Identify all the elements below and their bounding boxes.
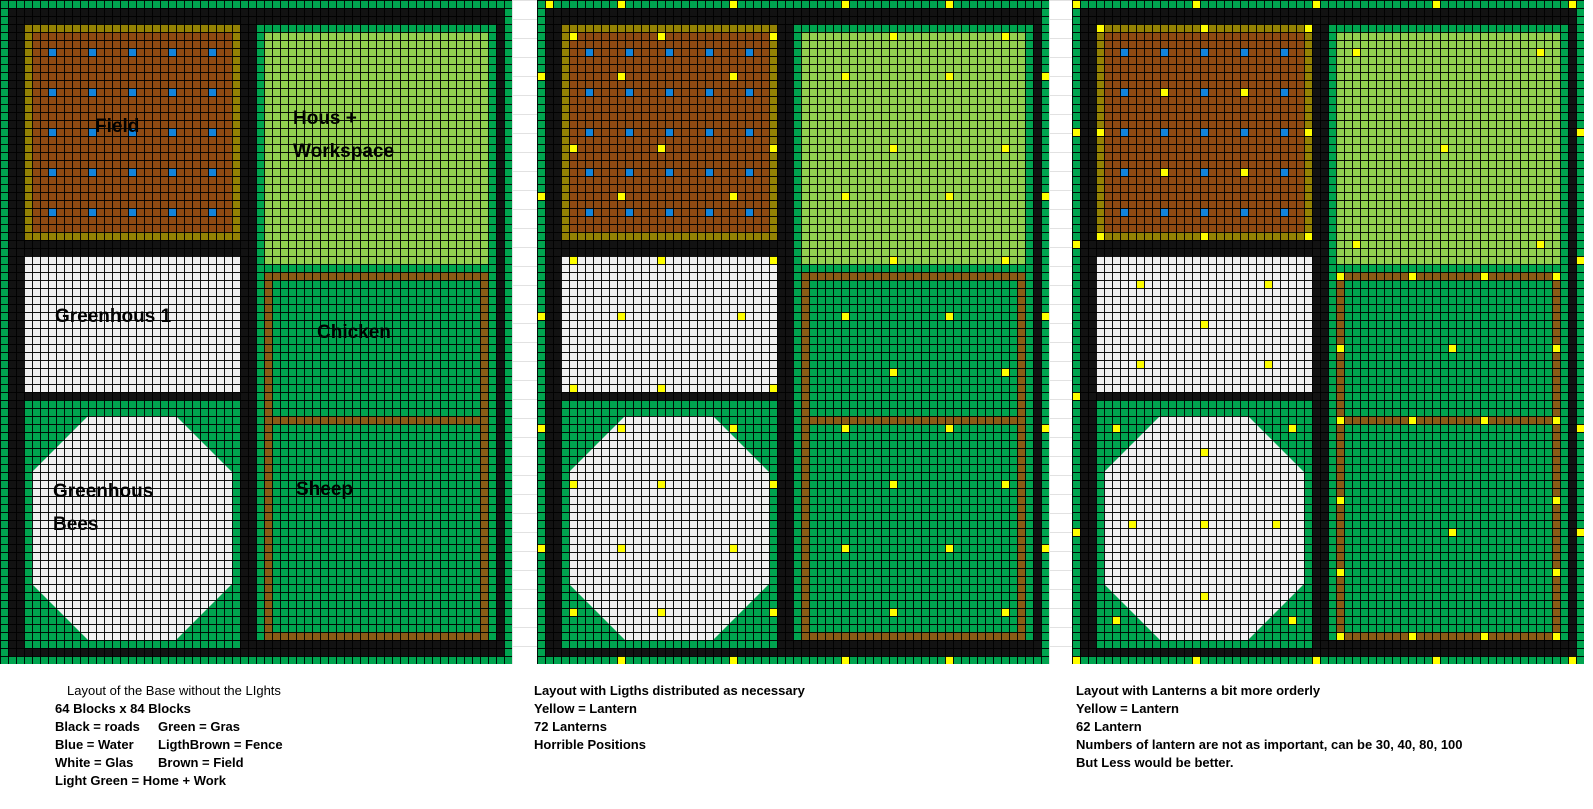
lantern-cell	[569, 32, 577, 40]
lantern-cell	[1312, 0, 1320, 8]
water-cell	[168, 128, 176, 136]
spreadsheet-gap-2	[1049, 0, 1072, 664]
water-cell	[1120, 48, 1128, 56]
lantern-cell	[945, 544, 953, 552]
lantern-cell	[737, 312, 745, 320]
water-cell	[1240, 128, 1248, 136]
lantern-cell	[1304, 24, 1312, 32]
lantern-cell	[1160, 88, 1168, 96]
lantern-cell	[1112, 616, 1120, 624]
lantern-cell	[617, 72, 625, 80]
lantern-cell	[889, 368, 897, 376]
lantern-cell	[617, 192, 625, 200]
lantern-cell	[1568, 656, 1576, 664]
region-border-top	[537, 0, 1049, 8]
caption-orderly-layout: Layout with Lanterns a bit more orderly …	[1076, 681, 1593, 772]
lantern-cell	[1408, 272, 1416, 280]
lantern-cell	[769, 256, 777, 264]
lantern-cell	[1336, 568, 1344, 576]
lantern-cell	[841, 544, 849, 552]
water-cell	[585, 128, 593, 136]
lantern-cell	[1536, 48, 1544, 56]
lantern-cell	[1552, 272, 1560, 280]
region-pen-divider-fence	[264, 416, 488, 424]
region-border-right	[504, 0, 512, 664]
lantern-cell	[657, 256, 665, 264]
lantern-cell	[1408, 632, 1416, 640]
region-border-left	[1072, 0, 1080, 664]
lantern-cell	[1136, 280, 1144, 288]
lantern-cell	[1200, 448, 1208, 456]
lantern-cell	[841, 656, 849, 664]
water-cell	[48, 48, 56, 56]
water-cell	[128, 48, 136, 56]
lantern-cell	[769, 608, 777, 616]
lantern-cell	[1264, 360, 1272, 368]
lantern-cell	[1200, 24, 1208, 32]
lantern-cell	[537, 72, 545, 80]
region-border-bottom	[537, 656, 1049, 664]
lantern-cell	[657, 608, 665, 616]
water-cell	[1120, 168, 1128, 176]
lantern-cell	[1408, 416, 1416, 424]
lantern-cell	[537, 424, 545, 432]
water-cell	[585, 208, 593, 216]
region-border-right	[1576, 0, 1584, 664]
water-cell	[625, 208, 633, 216]
region-border-left	[537, 0, 545, 664]
caption-line: Numbers of lantern are not as important,…	[1076, 736, 1593, 754]
water-cell	[745, 128, 753, 136]
water-cell	[665, 88, 673, 96]
lantern-cell	[657, 384, 665, 392]
water-cell	[665, 208, 673, 216]
lantern-cell	[1264, 280, 1272, 288]
lantern-cell	[1568, 0, 1576, 8]
water-cell	[1120, 128, 1128, 136]
lantern-cell	[1136, 360, 1144, 368]
block-grid-orderly	[1072, 0, 1584, 664]
lantern-cell	[1096, 24, 1104, 32]
caption-lights-layout: Layout with Ligths distributed as necess…	[534, 681, 1054, 754]
water-cell	[208, 128, 216, 136]
lantern-cell	[657, 144, 665, 152]
water-cell	[48, 168, 56, 176]
lantern-cell	[945, 656, 953, 664]
water-cell	[625, 48, 633, 56]
lantern-cell	[1001, 32, 1009, 40]
label-field: Field	[95, 116, 139, 138]
block-grid-lights	[537, 0, 1049, 664]
lantern-cell	[569, 384, 577, 392]
water-cell	[665, 168, 673, 176]
water-cell	[625, 128, 633, 136]
lantern-cell	[945, 0, 953, 8]
water-cell	[208, 168, 216, 176]
lantern-cell	[537, 312, 545, 320]
water-cell	[585, 48, 593, 56]
water-cell	[745, 88, 753, 96]
label-greenhous-1: Greenhous 1	[55, 306, 171, 328]
lantern-cell	[1432, 656, 1440, 664]
lantern-cell	[1304, 232, 1312, 240]
water-cell	[625, 168, 633, 176]
lantern-cell	[569, 144, 577, 152]
lantern-cell	[1288, 424, 1296, 432]
region-border-bottom	[1072, 656, 1584, 664]
caption-title: Layout with Ligths distributed as necess…	[534, 681, 1054, 700]
region-pen-divider-fence	[1336, 416, 1560, 424]
water-cell	[705, 168, 713, 176]
caption-line: But Less would be better.	[1076, 754, 1593, 772]
water-cell	[705, 128, 713, 136]
water-cell	[745, 168, 753, 176]
lantern-cell	[1001, 608, 1009, 616]
water-cell	[1280, 48, 1288, 56]
lantern-cell	[1336, 416, 1344, 424]
lantern-cell	[1336, 272, 1344, 280]
lantern-cell	[769, 384, 777, 392]
water-cell	[1200, 88, 1208, 96]
panel-lights-as-necessary: Layout with Ligths distributed as necess…	[537, 0, 1049, 809]
lantern-cell	[1200, 320, 1208, 328]
water-cell	[625, 88, 633, 96]
lantern-cell	[1272, 520, 1280, 528]
lantern-cell	[1001, 144, 1009, 152]
water-cell	[48, 208, 56, 216]
water-cell	[1160, 48, 1168, 56]
label-bees: Bees	[53, 514, 98, 536]
lantern-cell	[1552, 632, 1560, 640]
lantern-cell	[545, 0, 553, 8]
lantern-cell	[1041, 544, 1049, 552]
water-cell	[1160, 128, 1168, 136]
lantern-cell	[769, 480, 777, 488]
region-border-left	[0, 0, 8, 664]
caption-line: Horrible Positions	[534, 736, 1054, 754]
lantern-cell	[617, 312, 625, 320]
lantern-cell	[1041, 192, 1049, 200]
lantern-cell	[617, 656, 625, 664]
panel-lanterns-more-orderly: Layout with Lanterns a bit more orderly …	[1072, 0, 1584, 809]
caption-title: Layout of the Base without the LIghts	[55, 681, 575, 700]
lantern-cell	[1448, 528, 1456, 536]
lantern-cell	[1552, 568, 1560, 576]
water-cell	[1200, 128, 1208, 136]
water-cell	[1200, 168, 1208, 176]
water-cell	[1240, 208, 1248, 216]
lantern-cell	[569, 608, 577, 616]
water-cell	[208, 48, 216, 56]
caption-base-layout: Layout of the Base without the LIghts 64…	[55, 681, 575, 790]
lantern-cell	[1240, 88, 1248, 96]
label-sheep: Sheep	[296, 479, 353, 501]
lantern-cell	[729, 0, 737, 8]
water-cell	[88, 88, 96, 96]
region-pen-inner-grass	[1344, 280, 1552, 632]
lantern-cell	[1200, 520, 1208, 528]
lantern-cell	[1072, 240, 1080, 248]
lantern-cell	[1448, 344, 1456, 352]
water-cell	[1120, 208, 1128, 216]
lantern-cell	[1336, 344, 1344, 352]
lantern-cell	[1576, 424, 1584, 432]
lantern-cell	[729, 192, 737, 200]
lantern-cell	[1072, 128, 1080, 136]
lantern-cell	[1072, 392, 1080, 400]
lantern-cell	[569, 480, 577, 488]
lantern-cell	[1480, 632, 1488, 640]
lantern-cell	[1240, 168, 1248, 176]
lantern-cell	[945, 72, 953, 80]
lantern-cell	[1552, 496, 1560, 504]
panel-base-without-lights: FieldHous +WorkspaceGreenhous 1ChickenGr…	[0, 0, 512, 809]
lantern-cell	[729, 656, 737, 664]
lantern-cell	[769, 32, 777, 40]
lantern-cell	[1192, 656, 1200, 664]
lantern-cell	[1336, 632, 1344, 640]
lantern-cell	[1072, 528, 1080, 536]
caption-line: Light Green = Home + Work	[55, 772, 575, 790]
lantern-cell	[1192, 0, 1200, 8]
lantern-cell	[729, 424, 737, 432]
lantern-cell	[617, 544, 625, 552]
lantern-cell	[889, 608, 897, 616]
region-pen-inner-grass	[809, 280, 1017, 632]
caption-line: 64 Blocks x 84 Blocks	[55, 700, 575, 718]
lantern-cell	[1160, 168, 1168, 176]
region-hous-floor	[1336, 32, 1560, 264]
water-cell	[1200, 48, 1208, 56]
lantern-cell	[729, 72, 737, 80]
lantern-cell	[1041, 312, 1049, 320]
lantern-cell	[1440, 144, 1448, 152]
water-cell	[665, 48, 673, 56]
water-cell	[585, 168, 593, 176]
water-cell	[1120, 88, 1128, 96]
water-cell	[168, 208, 176, 216]
lantern-cell	[1096, 232, 1104, 240]
lantern-cell	[1336, 496, 1344, 504]
lantern-cell	[1536, 240, 1544, 248]
lantern-cell	[1072, 0, 1080, 8]
water-cell	[1240, 48, 1248, 56]
lantern-cell	[1001, 256, 1009, 264]
water-cell	[128, 168, 136, 176]
water-cell	[705, 48, 713, 56]
water-cell	[745, 48, 753, 56]
lantern-cell	[1576, 528, 1584, 536]
lantern-cell	[1432, 0, 1440, 8]
lantern-cell	[841, 0, 849, 8]
lantern-cell	[1576, 256, 1584, 264]
region-border-bottom	[0, 656, 512, 664]
caption-line: 62 Lantern	[1076, 718, 1593, 736]
label-chicken: Chicken	[317, 322, 391, 344]
water-cell	[705, 88, 713, 96]
water-cell	[128, 88, 136, 96]
water-cell	[585, 88, 593, 96]
region-border-top	[1072, 0, 1584, 8]
lantern-cell	[729, 544, 737, 552]
water-cell	[1280, 168, 1288, 176]
water-cell	[705, 208, 713, 216]
lantern-cell	[889, 144, 897, 152]
lantern-cell	[1001, 480, 1009, 488]
lantern-cell	[1041, 424, 1049, 432]
lantern-cell	[889, 32, 897, 40]
water-cell	[48, 88, 56, 96]
lantern-cell	[841, 72, 849, 80]
caption-line: Yellow = Lantern	[1076, 700, 1593, 718]
region-border-top	[0, 0, 512, 8]
lantern-cell	[889, 480, 897, 488]
caption-line: Black = roadsGreen = Gras	[55, 718, 575, 736]
lantern-cell	[1352, 48, 1360, 56]
lantern-cell	[841, 424, 849, 432]
lantern-cell	[841, 192, 849, 200]
lantern-cell	[1552, 416, 1560, 424]
lantern-cell	[945, 312, 953, 320]
water-cell	[168, 48, 176, 56]
lantern-cell	[1288, 616, 1296, 624]
water-cell	[168, 168, 176, 176]
lantern-cell	[1480, 416, 1488, 424]
lantern-cell	[1352, 240, 1360, 248]
water-cell	[208, 88, 216, 96]
water-cell	[208, 208, 216, 216]
lantern-cell	[1576, 128, 1584, 136]
spreadsheet-gap-1	[512, 0, 537, 664]
caption-line: 72 Lanterns	[534, 718, 1054, 736]
lantern-cell	[569, 256, 577, 264]
lantern-cell	[1552, 344, 1560, 352]
water-cell	[1280, 128, 1288, 136]
lantern-cell	[1112, 424, 1120, 432]
lantern-cell	[1200, 232, 1208, 240]
caption-line: Yellow = Lantern	[534, 700, 1054, 718]
caption-line: White = GlasBrown = Field	[55, 754, 575, 772]
lantern-cell	[1200, 592, 1208, 600]
water-cell	[1200, 208, 1208, 216]
lantern-cell	[617, 424, 625, 432]
lantern-cell	[769, 144, 777, 152]
region-greenhous1-glass	[561, 256, 777, 392]
lantern-cell	[841, 312, 849, 320]
water-cell	[1280, 88, 1288, 96]
water-cell	[168, 88, 176, 96]
water-cell	[1160, 208, 1168, 216]
lantern-cell	[657, 32, 665, 40]
lantern-cell	[1312, 656, 1320, 664]
label-workspace: Workspace	[293, 141, 394, 163]
lantern-cell	[945, 192, 953, 200]
caption-line: Blue = WaterLigthBrown = Fence	[55, 736, 575, 754]
region-hous-floor	[801, 32, 1025, 264]
water-cell	[128, 208, 136, 216]
lantern-cell	[1480, 272, 1488, 280]
lantern-cell	[945, 424, 953, 432]
lantern-cell	[1128, 520, 1136, 528]
lantern-cell	[1096, 128, 1104, 136]
water-cell	[88, 48, 96, 56]
lantern-cell	[537, 192, 545, 200]
layout-diagram-stage: FieldHous +WorkspaceGreenhous 1ChickenGr…	[0, 0, 1593, 809]
lantern-cell	[1041, 72, 1049, 80]
block-grid-base: FieldHous +WorkspaceGreenhous 1ChickenGr…	[0, 0, 512, 664]
region-bees-glass-octagon	[569, 416, 769, 640]
lantern-cell	[1072, 656, 1080, 664]
region-pen-divider-fence	[801, 416, 1025, 424]
lantern-cell	[657, 480, 665, 488]
lantern-cell	[1304, 128, 1312, 136]
region-border-right	[1041, 0, 1049, 664]
label-hous: Hous +	[293, 108, 357, 130]
lantern-cell	[617, 0, 625, 8]
lantern-cell	[537, 544, 545, 552]
water-cell	[665, 128, 673, 136]
lantern-cell	[889, 256, 897, 264]
label-greenhous: Greenhous	[53, 481, 153, 503]
water-cell	[1280, 208, 1288, 216]
water-cell	[745, 208, 753, 216]
caption-title: Layout with Lanterns a bit more orderly	[1076, 681, 1593, 700]
water-cell	[88, 168, 96, 176]
water-cell	[88, 208, 96, 216]
water-cell	[48, 128, 56, 136]
lantern-cell	[1001, 368, 1009, 376]
